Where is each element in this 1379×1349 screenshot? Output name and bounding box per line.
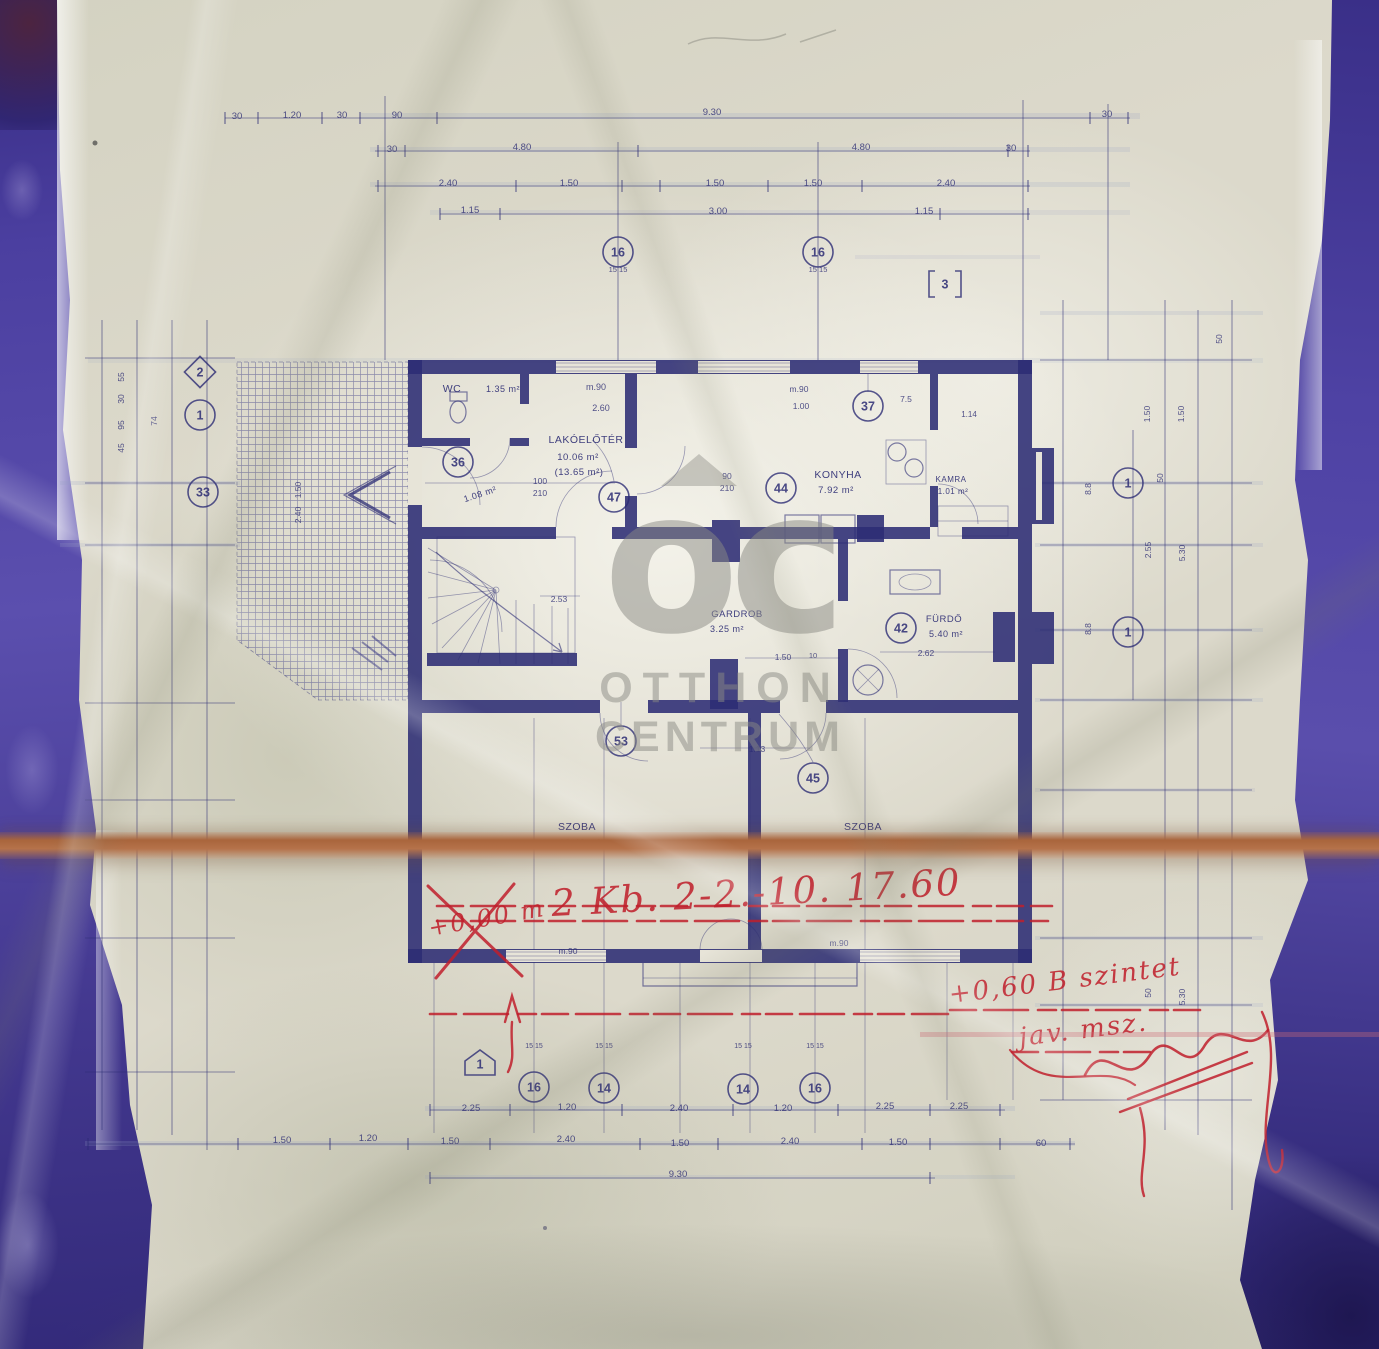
- dim-label: 1.50: [889, 1137, 908, 1148]
- dim-label: 2.53: [551, 594, 568, 604]
- dim-label: 1.50: [775, 652, 792, 662]
- dim-label: 2.25: [462, 1103, 481, 1114]
- washing-machine-icon: [853, 665, 883, 695]
- dim-label: 1.20: [359, 1133, 378, 1144]
- room-name: WC: [443, 383, 462, 395]
- faint-pink-line: [920, 1032, 1379, 1037]
- dim-label: 1.50: [293, 481, 303, 498]
- tape-stripe: [0, 832, 1379, 859]
- dim-label: 2.25: [876, 1101, 895, 1112]
- dim-label: 1.50: [706, 178, 725, 189]
- red-arrow: [505, 996, 520, 1072]
- dim-label: 1.50: [273, 1135, 292, 1146]
- red-annotation: jav. msz.: [1012, 1007, 1149, 1053]
- marker-number: 3: [942, 278, 949, 292]
- dim-label: 50: [1214, 334, 1224, 344]
- dim-label: 5.30: [1177, 988, 1187, 1005]
- room-area: 1.35 m²: [486, 384, 520, 394]
- plan-marker: 3: [929, 271, 961, 297]
- dim-label: 1.00: [793, 401, 810, 411]
- dim-label: 30: [1102, 109, 1113, 120]
- plan-marker: 14: [728, 1074, 758, 1104]
- plan-marker: 1: [185, 400, 215, 430]
- dim-label: 1.14: [961, 410, 977, 419]
- dim-label: 1.20: [558, 1102, 577, 1113]
- dim-label: 50: [1155, 473, 1165, 483]
- room-name: FÜRDŐ: [926, 614, 962, 625]
- marker-number: 45: [806, 772, 820, 786]
- marker-number: 16: [611, 246, 625, 260]
- dim-label: m.90: [790, 384, 809, 394]
- room-area: 10.06 m²: [557, 452, 599, 463]
- room-name: GARDROB: [711, 609, 763, 620]
- room-area: 1.01 m²: [938, 487, 969, 496]
- dim-label: 74: [149, 416, 159, 426]
- dim-label: 1.20: [283, 110, 302, 121]
- marker-number: 2: [197, 366, 204, 380]
- dim-label: 15 15: [734, 1043, 752, 1050]
- dim-label: 210: [533, 488, 547, 498]
- dim-label: 2.62: [918, 648, 935, 658]
- dim-label: 15 15: [525, 1043, 543, 1050]
- dim-label: 4.80: [852, 142, 871, 153]
- dim-label: 8.8: [1083, 483, 1093, 495]
- marker-number: 53: [614, 735, 628, 749]
- dim-label: 9.30: [703, 107, 722, 118]
- marker-number: 1: [477, 1058, 484, 1072]
- dim-label: 7.5: [900, 394, 912, 404]
- plan-marker: 1: [465, 1050, 495, 1075]
- dim-label: 2.40: [937, 178, 956, 189]
- dim-label: 30: [387, 144, 398, 155]
- marker-number: 1: [1125, 626, 1132, 640]
- dim-label: 8.8: [1083, 623, 1093, 635]
- dim-label: 9.30: [669, 1169, 688, 1180]
- room-labels-layer: WC1.35 m²1.08 m²LAKÓELŐTÉR10.06 m²(13.65…: [443, 383, 969, 850]
- plan-marker: 44: [766, 473, 796, 503]
- room-name: KONYHA: [814, 469, 861, 481]
- marker-number: 44: [774, 482, 788, 496]
- dim-label: 90: [392, 110, 403, 121]
- toilet-icon: [450, 401, 466, 423]
- dim-label: 1.50: [804, 178, 823, 189]
- dim-label: 2.60: [592, 403, 610, 413]
- dim-label: 2.40: [293, 506, 303, 523]
- dim-label: 55: [116, 372, 126, 382]
- dim-label: 100: [533, 476, 547, 486]
- plan-marker: 37: [853, 391, 883, 421]
- marker-number: 33: [196, 486, 210, 500]
- marker-number: 47: [607, 491, 621, 505]
- red-ink-strokes: [428, 884, 1283, 1196]
- plan-marker: 45: [798, 763, 828, 793]
- dim-label: 1.15: [461, 205, 480, 216]
- sink-icon: [888, 443, 906, 461]
- dim-label: 30: [337, 110, 348, 121]
- dim-label: 30: [1006, 143, 1017, 154]
- marker-number: 16: [811, 246, 825, 260]
- marker-number: 1: [197, 409, 204, 423]
- dim-label: 1.50: [671, 1138, 690, 1149]
- dim-label: 210: [720, 483, 734, 493]
- room-area: 5.40 m²: [929, 629, 963, 639]
- dim-label: 90: [722, 471, 732, 481]
- dim-label: 1.13: [749, 744, 766, 754]
- dim-label: 30: [232, 111, 243, 122]
- dim-label: 3.00: [709, 206, 728, 217]
- dim-label: m.90: [559, 946, 578, 956]
- dim-label: 1.50: [560, 178, 579, 189]
- dim-label: 2.40: [439, 178, 458, 189]
- dim-label: 1.20: [774, 1103, 793, 1114]
- dim-label: 1.50: [1176, 405, 1186, 422]
- plan-marker: 47: [599, 482, 629, 512]
- dim-label: 95: [116, 420, 126, 430]
- dim-label: m.90: [830, 938, 849, 948]
- dim-label: 45: [116, 443, 126, 453]
- dim-label: 30: [116, 394, 126, 404]
- dim-label: 2.40: [670, 1103, 689, 1114]
- marker-number: 14: [597, 1082, 611, 1096]
- dim-label: 15 15: [806, 1043, 824, 1050]
- dim-label: 1.50: [441, 1136, 460, 1147]
- dim-label: 50: [1143, 988, 1153, 998]
- marker-number: 37: [861, 400, 875, 414]
- room-name: LAKÓELŐTÉR: [548, 432, 623, 446]
- room-area: 7.92 m²: [818, 485, 854, 496]
- dim-label: m.90: [586, 382, 606, 392]
- dim-label: 1.15: [915, 206, 934, 217]
- plan-marker: 42: [886, 613, 916, 643]
- dim-label: 15 15: [595, 1043, 613, 1050]
- dim-label: 60: [1036, 1138, 1047, 1149]
- terrace-hatch: [237, 362, 408, 700]
- marker-number: 42: [894, 622, 908, 636]
- dim-label: 2.55: [1143, 541, 1153, 558]
- room-name: KAMRA: [936, 475, 967, 484]
- dim-label: 5.30: [1177, 544, 1187, 561]
- dim-label: 10: [809, 651, 817, 660]
- room-area: 3.25 m²: [710, 624, 744, 634]
- floorplan-drawing: WC1.35 m²1.08 m²LAKÓELŐTÉR10.06 m²(13.65…: [0, 0, 1379, 1349]
- dim-label: 1.50: [1142, 405, 1152, 422]
- marker-number: 14: [736, 1083, 750, 1097]
- plan-marker: 53: [606, 726, 636, 756]
- dim-label: 2.40: [781, 1136, 800, 1147]
- marker-number: 1: [1125, 477, 1132, 491]
- room-area-alt: (13.65 m²): [555, 467, 604, 478]
- marker-number: 36: [451, 456, 465, 470]
- plan-marker: 36: [443, 447, 473, 477]
- dim-label: 2.40: [557, 1134, 576, 1145]
- dim-label: 2.25: [950, 1101, 969, 1112]
- scanned-floorplan-photo: WC1.35 m²1.08 m²LAKÓELŐTÉR10.06 m²(13.65…: [0, 0, 1379, 1349]
- marker-number: 16: [808, 1082, 822, 1096]
- dim-label: 4.80: [513, 142, 532, 153]
- marker-number: 16: [527, 1081, 541, 1095]
